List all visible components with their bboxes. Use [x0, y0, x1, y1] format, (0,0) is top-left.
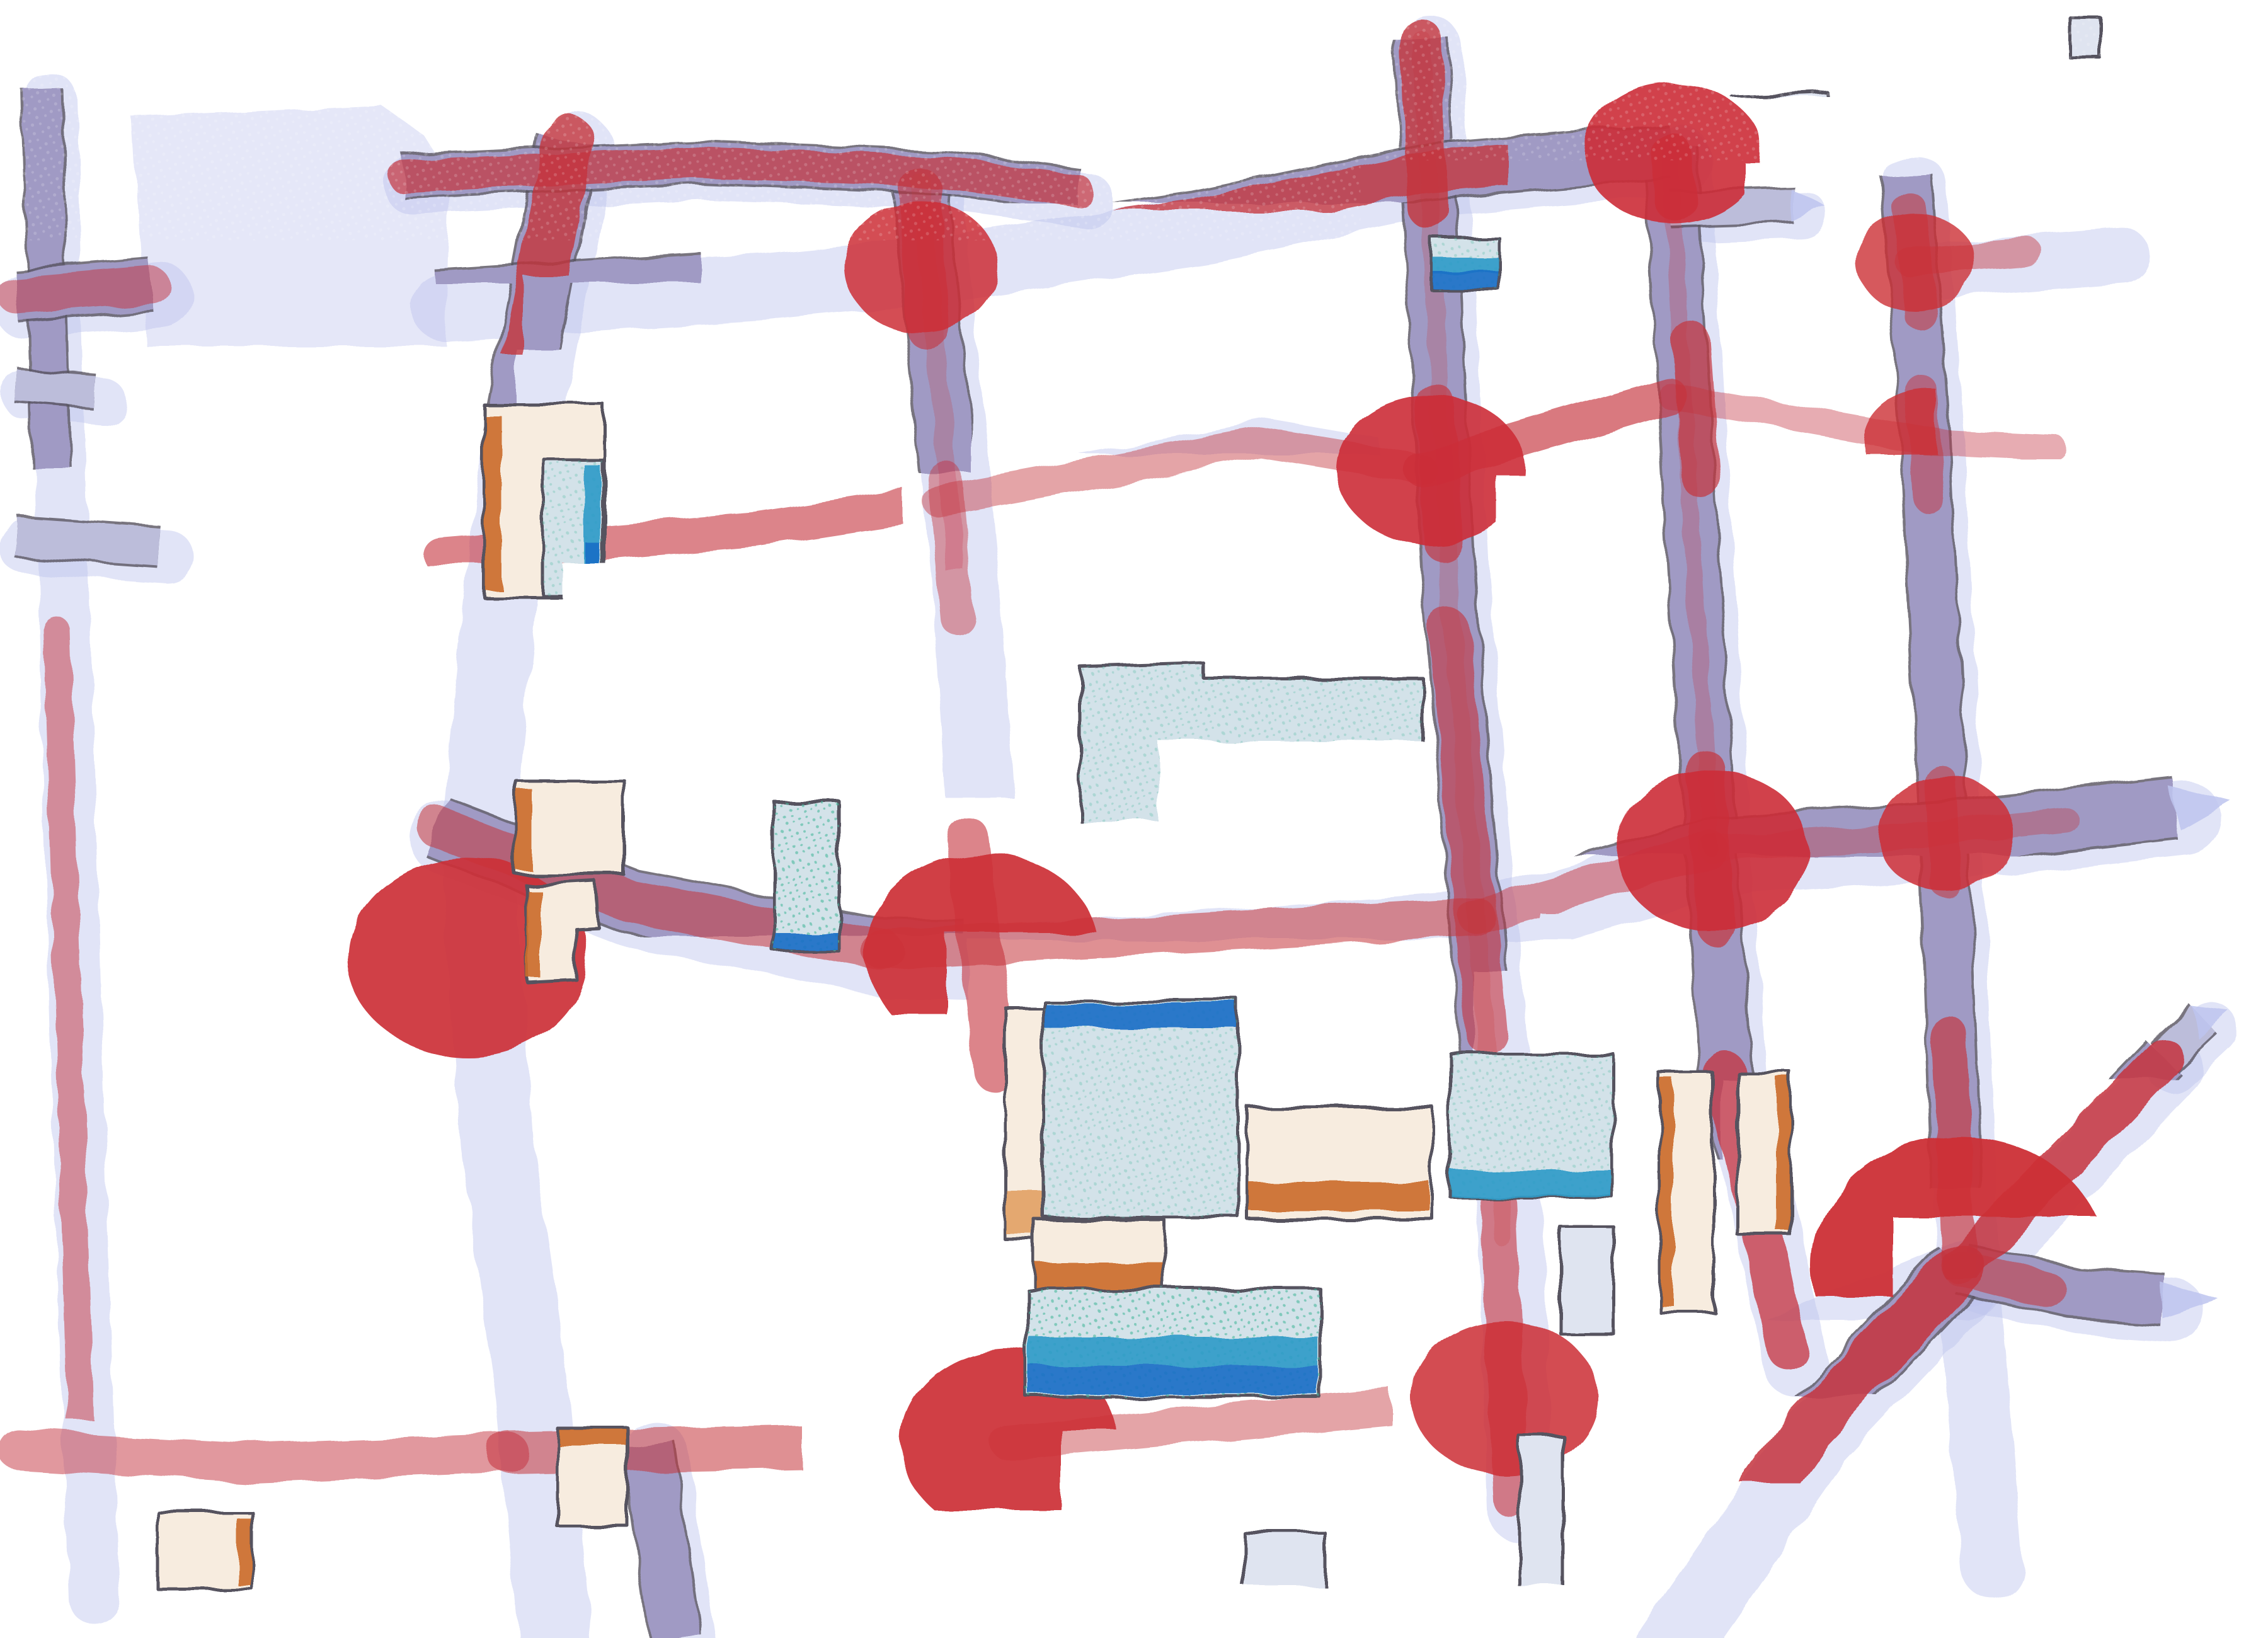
hand-drawn-city-map-page: [0, 0, 2268, 1638]
crayon-grain-overlay: [0, 0, 2268, 1638]
map-drawing: [0, 0, 2268, 1638]
